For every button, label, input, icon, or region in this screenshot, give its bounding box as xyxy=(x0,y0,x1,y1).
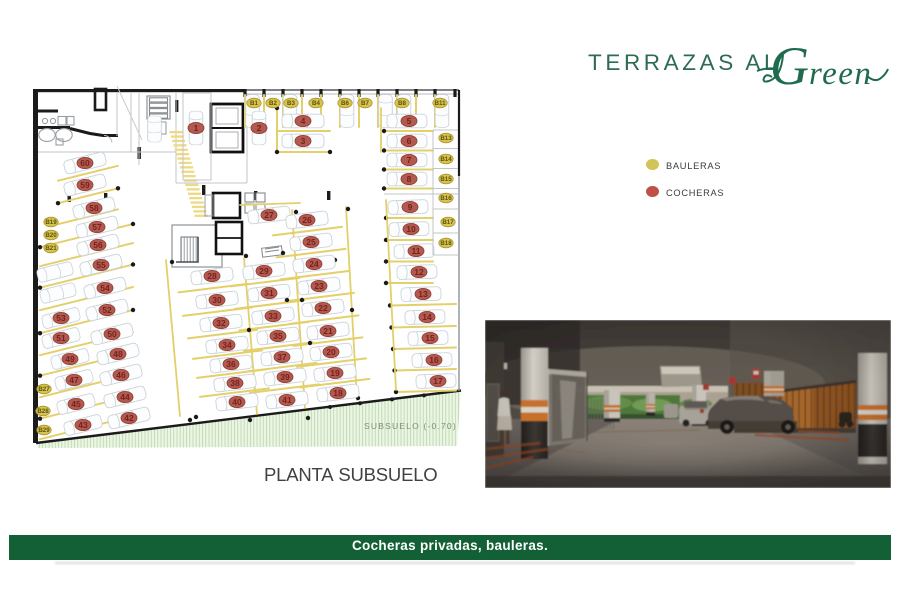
svg-text:45: 45 xyxy=(71,399,81,409)
svg-text:44: 44 xyxy=(120,392,130,402)
svg-text:B21: B21 xyxy=(45,245,57,252)
svg-text:13: 13 xyxy=(418,289,428,299)
svg-text:48: 48 xyxy=(113,349,123,359)
svg-text:7: 7 xyxy=(407,155,412,165)
svg-text:35: 35 xyxy=(273,331,283,341)
svg-text:15: 15 xyxy=(425,333,435,343)
svg-text:60: 60 xyxy=(80,158,90,168)
svg-text:25: 25 xyxy=(306,237,316,247)
svg-text:21: 21 xyxy=(323,326,333,336)
svg-text:B20: B20 xyxy=(45,232,57,239)
svg-text:12: 12 xyxy=(414,267,424,277)
svg-text:8: 8 xyxy=(407,174,412,184)
svg-text:37: 37 xyxy=(277,352,287,362)
svg-text:B15: B15 xyxy=(440,176,452,183)
svg-text:46: 46 xyxy=(116,370,126,380)
svg-text:B27: B27 xyxy=(38,386,50,393)
svg-text:B28: B28 xyxy=(37,408,49,415)
svg-text:19: 19 xyxy=(330,368,340,378)
svg-text:41: 41 xyxy=(282,395,292,405)
svg-text:51: 51 xyxy=(56,333,66,343)
svg-text:30: 30 xyxy=(212,295,222,305)
svg-text:B18: B18 xyxy=(440,240,452,247)
svg-text:56: 56 xyxy=(93,240,103,250)
svg-text:16: 16 xyxy=(429,355,439,365)
svg-text:SUBSUELO (-0.70): SUBSUELO (-0.70) xyxy=(364,421,457,431)
svg-text:11: 11 xyxy=(412,246,421,256)
svg-text:42: 42 xyxy=(124,413,134,423)
svg-text:32: 32 xyxy=(216,318,226,328)
svg-text:29: 29 xyxy=(259,266,269,276)
svg-text:57: 57 xyxy=(92,222,102,232)
svg-text:59: 59 xyxy=(80,180,90,190)
svg-text:33: 33 xyxy=(268,311,278,321)
svg-text:26: 26 xyxy=(302,215,312,225)
svg-text:B13: B13 xyxy=(440,135,452,142)
svg-text:6: 6 xyxy=(407,136,412,146)
svg-text:43: 43 xyxy=(78,420,88,430)
svg-text:18: 18 xyxy=(333,388,343,398)
svg-text:58: 58 xyxy=(89,203,99,213)
svg-text:34: 34 xyxy=(222,340,232,350)
svg-text:23: 23 xyxy=(314,281,324,291)
svg-text:28: 28 xyxy=(207,271,217,281)
svg-text:38: 38 xyxy=(230,378,240,388)
svg-text:B14: B14 xyxy=(440,156,452,163)
svg-text:36: 36 xyxy=(226,359,236,369)
svg-text:55: 55 xyxy=(96,260,106,270)
svg-text:39: 39 xyxy=(280,372,290,382)
svg-text:54: 54 xyxy=(100,283,110,293)
svg-text:52: 52 xyxy=(102,305,112,315)
svg-text:3: 3 xyxy=(301,136,306,146)
svg-text:31: 31 xyxy=(264,288,274,298)
svg-text:49: 49 xyxy=(65,354,75,364)
svg-text:20: 20 xyxy=(326,347,336,357)
svg-text:B19: B19 xyxy=(45,219,57,226)
svg-text:2: 2 xyxy=(257,123,262,133)
svg-text:22: 22 xyxy=(318,303,328,313)
svg-text:40: 40 xyxy=(232,397,242,407)
svg-text:B29: B29 xyxy=(38,427,50,434)
svg-text:47: 47 xyxy=(69,375,79,385)
svg-text:14: 14 xyxy=(422,312,432,322)
svg-text:B16: B16 xyxy=(440,195,452,202)
svg-text:B17: B17 xyxy=(442,219,454,226)
svg-text:53: 53 xyxy=(56,313,66,323)
svg-text:9: 9 xyxy=(408,202,413,212)
svg-text:1: 1 xyxy=(194,123,199,133)
svg-text:10: 10 xyxy=(406,224,416,234)
svg-text:24: 24 xyxy=(309,259,319,269)
svg-text:17: 17 xyxy=(433,376,443,386)
svg-text:27: 27 xyxy=(264,210,274,220)
svg-text:50: 50 xyxy=(107,329,117,339)
